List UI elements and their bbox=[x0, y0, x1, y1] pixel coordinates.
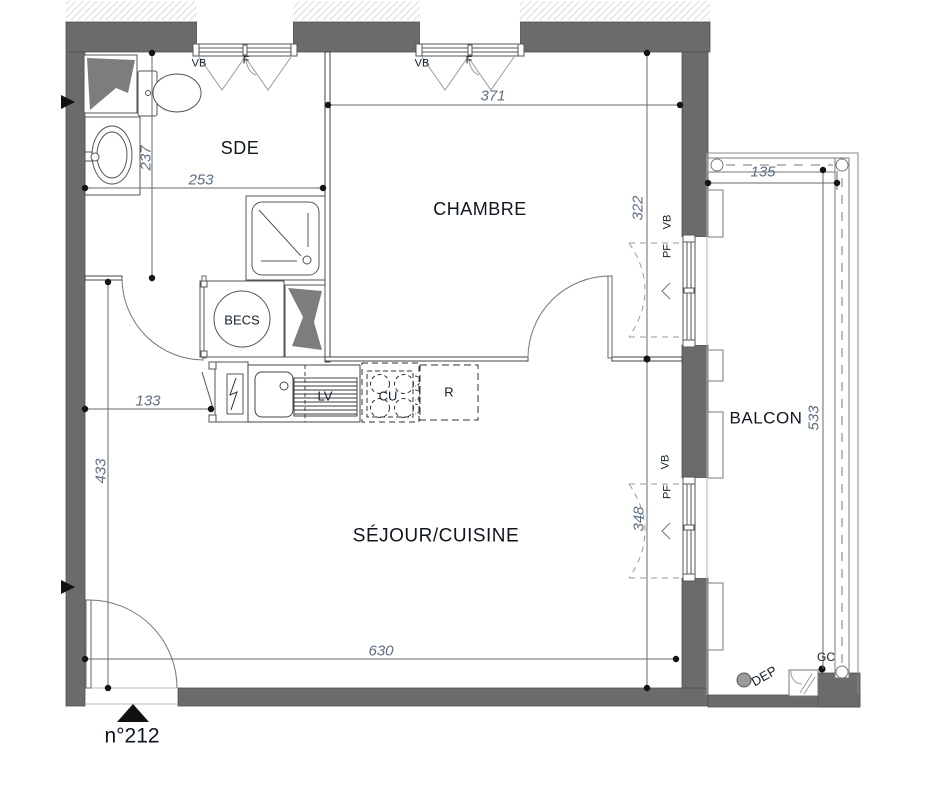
door-chambre bbox=[528, 276, 612, 358]
unit-number: n°212 bbox=[104, 726, 159, 747]
cooktop-label: CU bbox=[379, 390, 398, 403]
becs-closet bbox=[200, 281, 325, 357]
dimension-lines bbox=[85, 53, 837, 688]
toilet-bowl bbox=[153, 74, 201, 112]
door-sde bbox=[122, 276, 206, 360]
pf2-pf-label: PF bbox=[663, 485, 674, 499]
room-label-sejour: SÉJOUR/CUISINE bbox=[353, 527, 519, 546]
room-label-balcon: BALCON bbox=[730, 410, 803, 427]
top-hatch-strip bbox=[66, 0, 710, 21]
dim-133: 133 bbox=[135, 394, 160, 409]
dim-630: 630 bbox=[368, 644, 393, 659]
fridge-label: R bbox=[444, 386, 453, 399]
electrical-panel bbox=[202, 362, 248, 422]
pf1-pf-label: PF bbox=[663, 244, 674, 258]
tap bbox=[91, 153, 99, 161]
door-entry bbox=[86, 600, 178, 704]
window1-vb-label: VB bbox=[192, 59, 207, 70]
dim-135: 135 bbox=[750, 165, 775, 180]
dimension-dots bbox=[82, 50, 840, 691]
dim-433: 433 bbox=[94, 458, 109, 483]
pf1-vb-label: VB bbox=[663, 215, 674, 230]
dim-253: 253 bbox=[188, 173, 213, 188]
entry-marker bbox=[117, 704, 149, 722]
dim-371: 371 bbox=[480, 89, 505, 104]
balcony-drain bbox=[737, 666, 826, 697]
kitchen-sink bbox=[255, 372, 293, 417]
window-north-2 bbox=[416, 22, 524, 56]
window-north-1 bbox=[193, 22, 297, 56]
dim-533: 533 bbox=[807, 405, 822, 430]
dishwasher-label: LV bbox=[318, 390, 333, 403]
kitchen-counter bbox=[248, 365, 360, 422]
window2-vb-label: VB bbox=[415, 59, 430, 70]
gc-point bbox=[819, 666, 826, 673]
dim-237: 237 bbox=[139, 145, 154, 170]
balcony-piers bbox=[708, 190, 723, 650]
pf2-vb-label: VB bbox=[661, 455, 672, 470]
dim-348: 348 bbox=[632, 506, 647, 531]
shower bbox=[246, 196, 325, 280]
window-pf-chambre bbox=[682, 235, 708, 347]
floor-plan: SDE CHAMBRE SÉJOUR/CUISINE BALCON BECS L… bbox=[0, 0, 943, 800]
window-pf-ticks bbox=[662, 283, 670, 539]
window1-f-label: F bbox=[243, 56, 250, 67]
becs-label: BECS bbox=[224, 314, 259, 327]
gc-label: GC bbox=[817, 651, 835, 663]
room-label-sde: SDE bbox=[221, 139, 260, 157]
window-pf-sejour bbox=[682, 477, 708, 581]
dim-322: 322 bbox=[631, 195, 646, 220]
room-label-chambre: CHAMBRE bbox=[433, 200, 527, 218]
sde-fixtures bbox=[84, 55, 201, 195]
window2-f-label: F bbox=[466, 56, 473, 67]
exterior-walls bbox=[66, 22, 860, 707]
